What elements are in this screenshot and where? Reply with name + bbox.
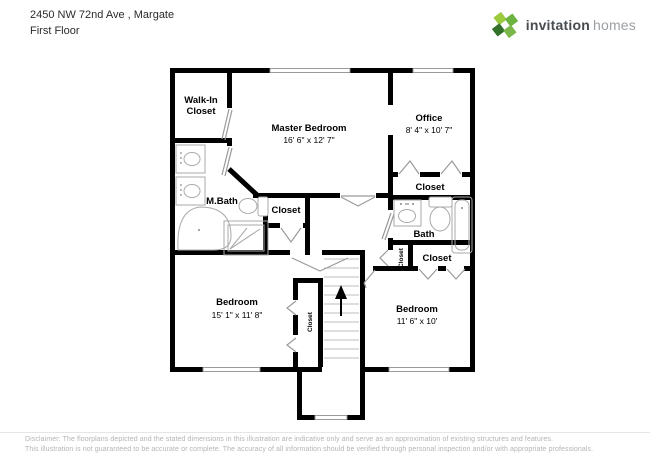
room-label-walk-in-closet-2: Closet [186,106,216,117]
toilet-icon [429,197,452,231]
window [413,69,453,73]
staircase [324,259,359,358]
room-label-hall-closet: Closet [271,205,301,216]
room-label-master-bedroom: Master Bedroom [272,123,347,134]
room-label-master-bath: M.Bath [206,196,238,207]
sink-icon [394,200,421,226]
disclaimer-line-2: This illustration is not guaranteed to b… [25,445,637,455]
bifold-door [287,338,296,352]
up-arrow-icon [335,285,347,316]
room-dims-master-bedroom: 16' 6" x 12' 7" [283,135,334,145]
disclaimer: Disclaimer: The floorplans depicted and … [25,435,637,454]
bifold-door [287,301,296,315]
bifold-door [447,269,465,279]
room-dims-office: 8' 4" x 10' 7" [406,125,453,135]
window [203,368,260,372]
floorplan-page: { "header": { "address": "2450 NW 72nd A… [0,0,650,460]
bifold-door [419,269,437,279]
room-label-bath: Bath [413,229,434,240]
double-door [341,196,375,206]
door-leaf [222,109,232,140]
bifold-door [441,161,461,174]
double-vanity-sink-icon [176,145,205,205]
room-label-walk-in-closet: Walk-In [184,95,218,106]
room-dims-bedroom2: 11' 6" x 10' [397,316,438,326]
disclaimer-line-1: Disclaimer: The floorplans depicted and … [25,435,637,445]
room-label-bedroom2-closet: Closet [422,253,452,264]
room-label-office: Office [416,113,443,124]
toilet-icon [239,197,268,216]
bifold-door [281,228,301,242]
window [315,416,347,420]
room-label-linen-closet: Closet [398,247,405,268]
room-label-bedroom3-closet: Closet [307,311,314,332]
window [389,368,449,372]
bifold-door [380,250,388,266]
door-swing [364,270,375,288]
room-label-office-closet: Closet [415,182,445,193]
door-leaf [382,213,394,240]
floorplan-drawing: Walk-In Closet Master Bedroom 16' 6" x 1… [0,0,650,460]
window [270,69,350,73]
room-label-bedroom3: Bedroom [216,297,258,308]
room-dims-bedroom3: 15' 1" x 11' 8" [212,310,263,320]
corner-tub-icon [178,207,231,250]
room-label-bedroom2: Bedroom [396,304,438,315]
footer-divider [0,432,650,433]
double-door [292,258,348,271]
bifold-door [399,161,419,174]
